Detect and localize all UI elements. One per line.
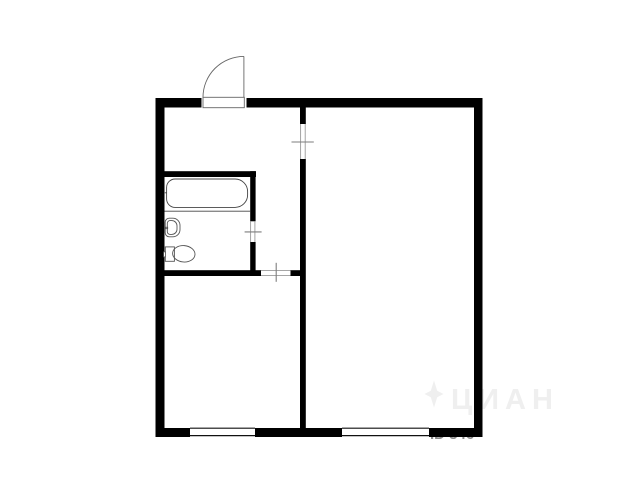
svg-text:ЦИАН: ЦИАН xyxy=(451,384,559,416)
